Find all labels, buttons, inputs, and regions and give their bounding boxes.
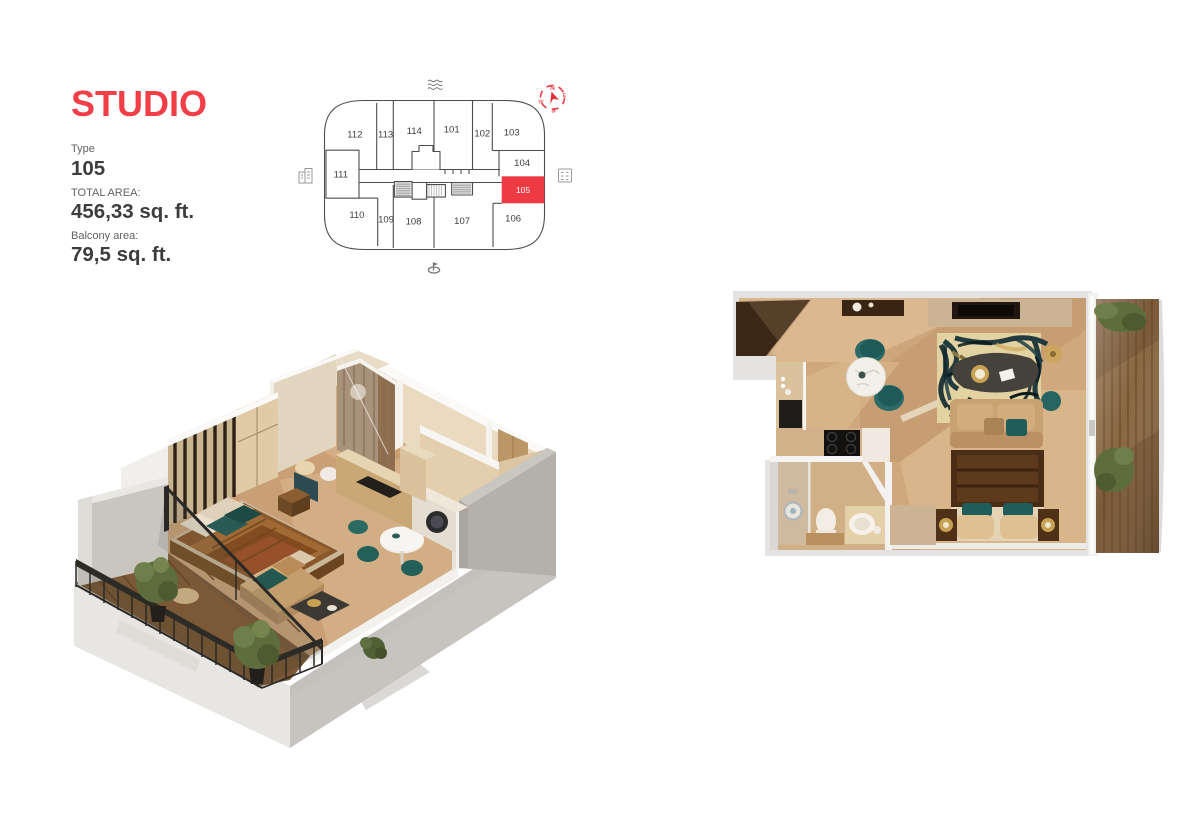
svg-text:S: S: [551, 108, 556, 115]
svg-text:103: 103: [504, 128, 520, 139]
svg-text:107: 107: [454, 216, 470, 227]
svg-text:112: 112: [347, 130, 362, 141]
svg-text:101: 101: [444, 124, 460, 135]
svg-text:N: N: [550, 85, 555, 92]
svg-text:W: W: [538, 100, 544, 106]
svg-text:105: 105: [516, 185, 530, 195]
svg-text:106: 106: [505, 214, 521, 225]
svg-text:102: 102: [474, 129, 490, 140]
svg-text:104: 104: [514, 158, 530, 169]
svg-text:108: 108: [406, 216, 422, 227]
svg-text:113: 113: [378, 130, 393, 141]
svg-text:114: 114: [407, 126, 422, 137]
svg-text:110: 110: [349, 210, 364, 221]
svg-text:111: 111: [334, 170, 348, 181]
svg-text:109: 109: [378, 214, 394, 225]
svg-text:E: E: [563, 93, 567, 99]
